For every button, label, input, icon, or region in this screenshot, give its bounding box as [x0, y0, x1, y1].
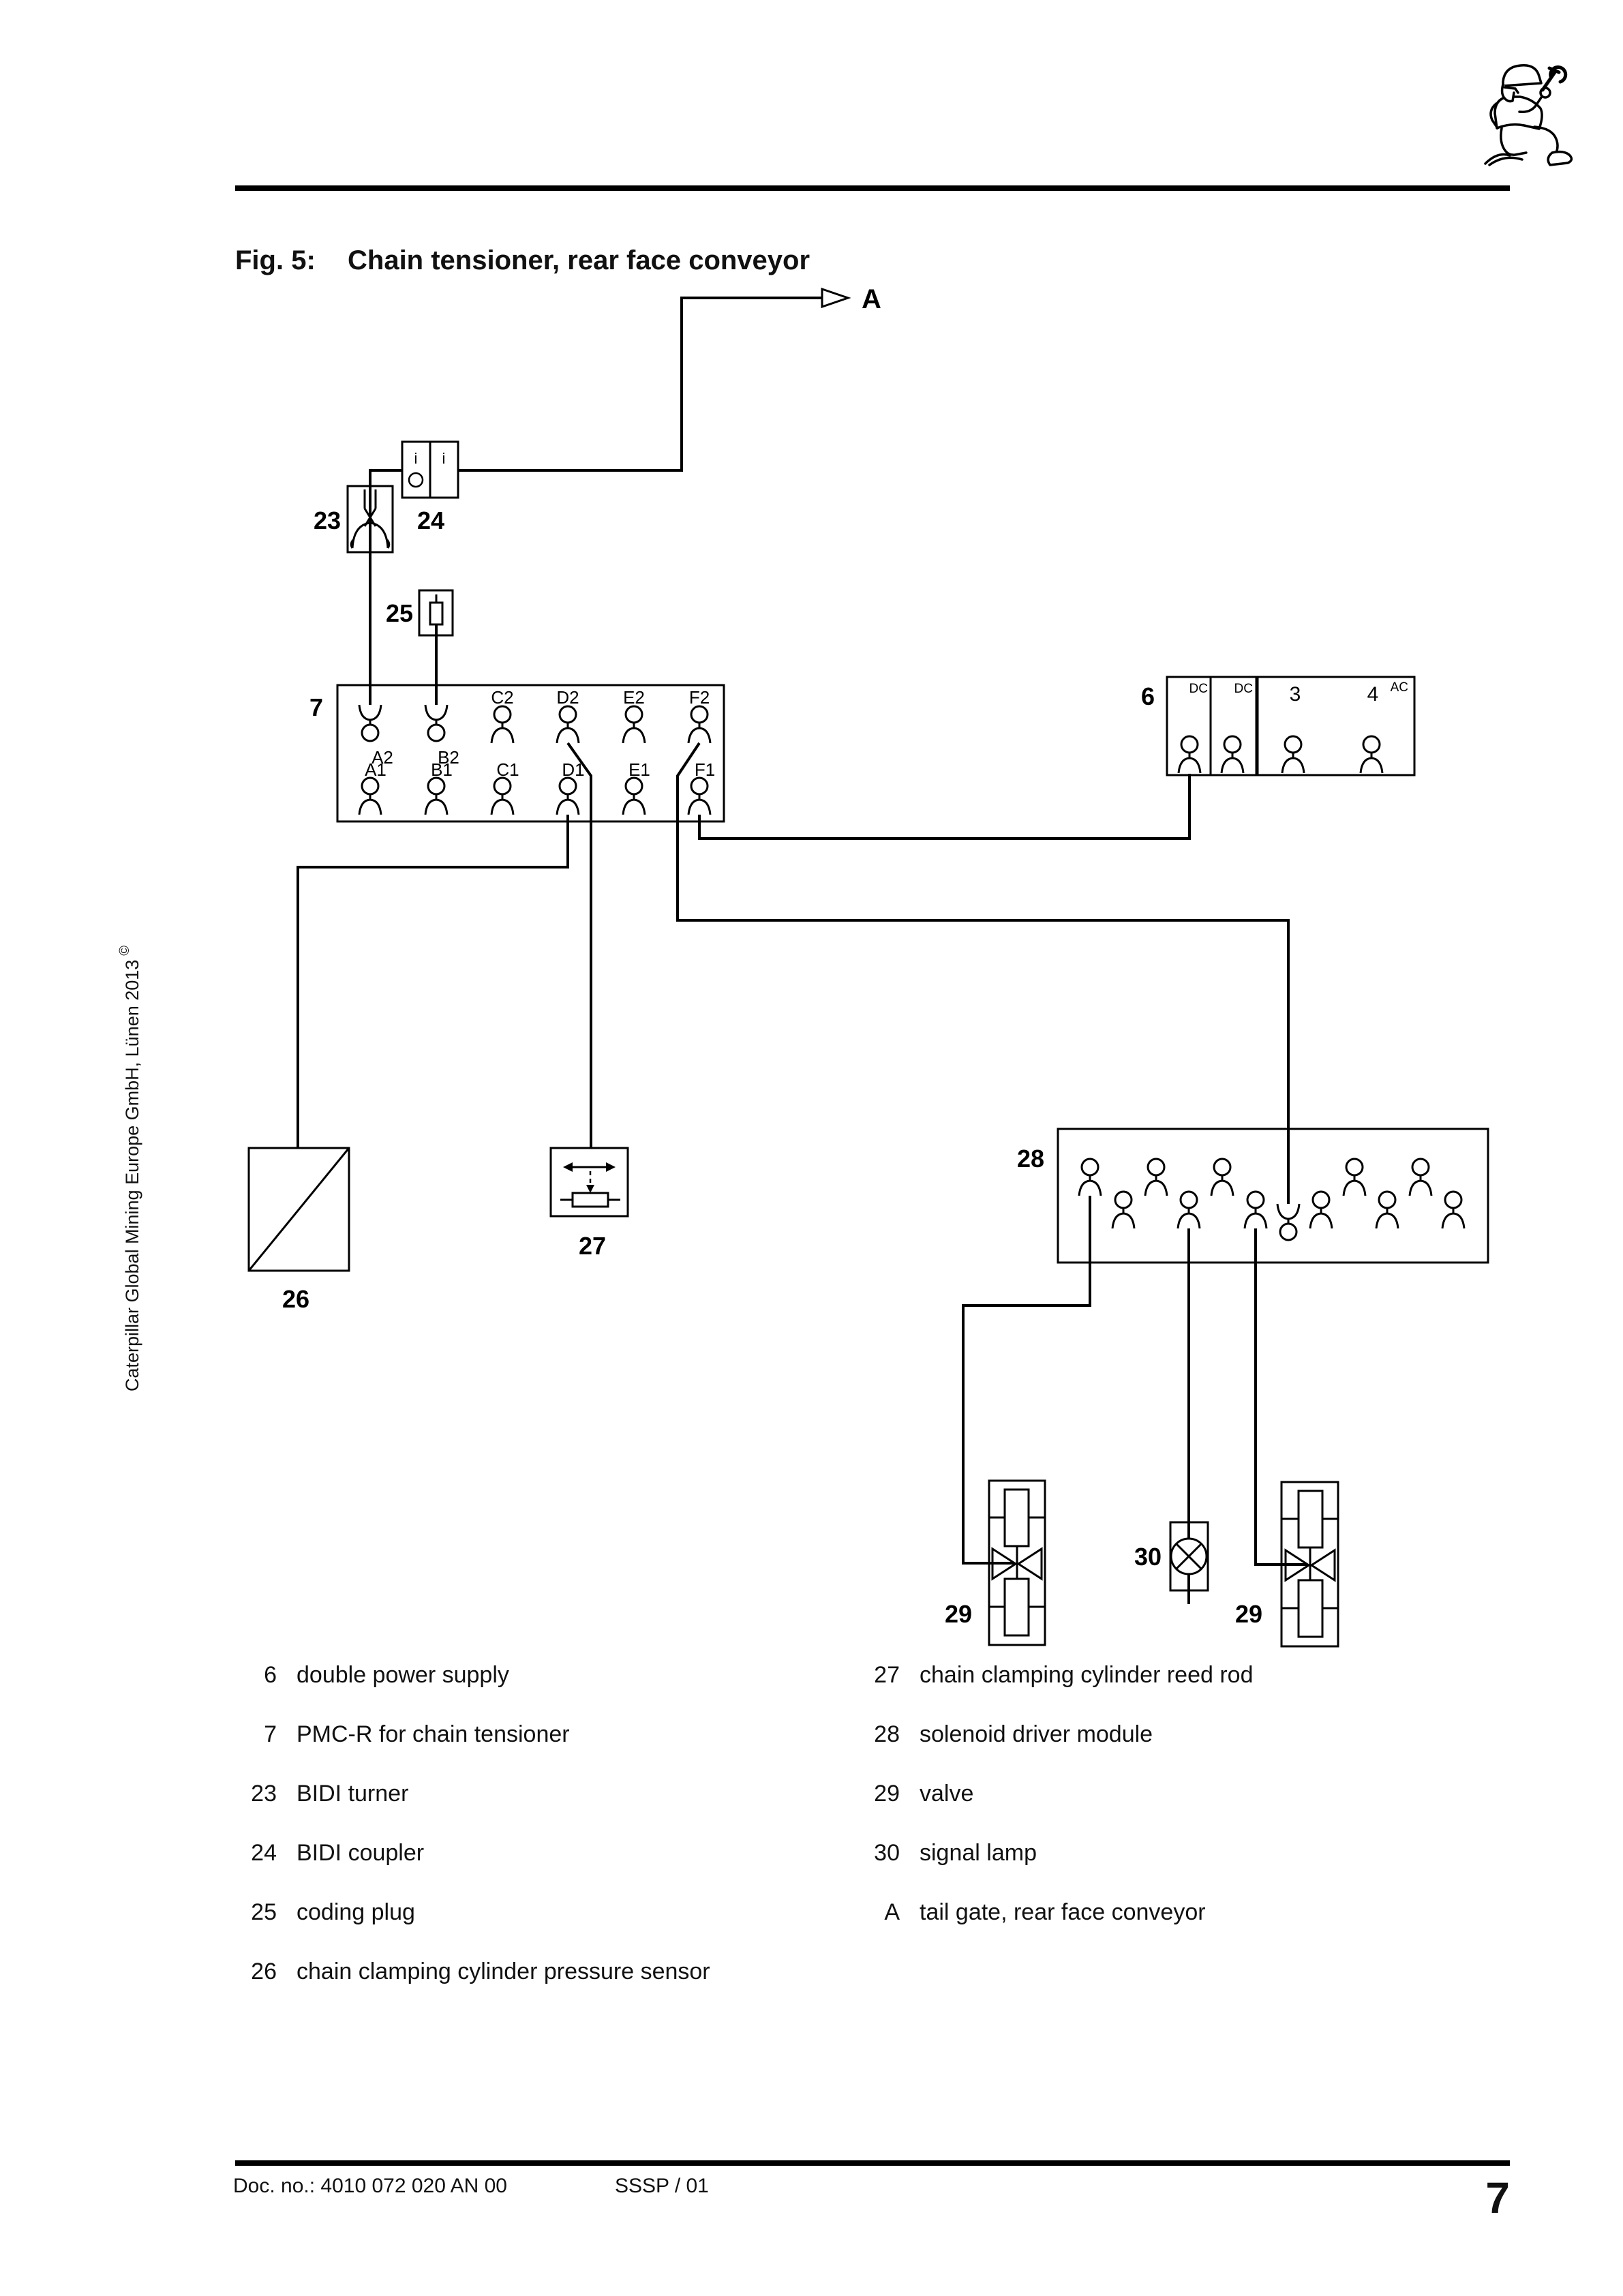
component-bidi-coupler: i i 24: [402, 442, 458, 534]
legend-label: double power supply: [297, 1661, 509, 1721]
connector-plug: [1376, 1192, 1398, 1228]
port-c2: C2: [491, 687, 513, 708]
label-29-left: 29: [945, 1600, 972, 1628]
connector-plug: [623, 778, 645, 815]
port-a1: A1: [365, 759, 386, 780]
legend-label: chain clamping cylinder pressure sensor: [297, 1958, 710, 2017]
label-23: 23: [314, 507, 341, 534]
legend-label: signal lamp: [920, 1839, 1037, 1899]
cell-dc1: DC: [1189, 682, 1208, 696]
legend-label: chain clamping cylinder reed rod: [920, 1661, 1253, 1721]
legend-item: 28solenoid driver module: [855, 1721, 1253, 1780]
component-valve-right: 29: [1235, 1482, 1338, 1646]
connector-socket: [1277, 1204, 1299, 1240]
legend-num: 29: [855, 1780, 900, 1839]
label-30: 30: [1134, 1543, 1162, 1571]
connector-plug: [623, 706, 645, 743]
cell-ac: AC: [1391, 680, 1408, 695]
connector-plug: [1344, 1159, 1365, 1196]
port-e1: E1: [628, 759, 650, 780]
document-page: Fig. 5:Chain tensioner, rear face convey…: [0, 0, 1623, 2296]
connector-plug: [1361, 736, 1382, 773]
connector-socket: [425, 705, 447, 741]
legend-num: A: [855, 1899, 900, 1958]
arrow-left-icon: [563, 1162, 573, 1172]
port-b1: B1: [431, 759, 453, 780]
wire-f2-solenoid-driver: [678, 743, 1288, 1204]
legend-num: 26: [232, 1958, 277, 2017]
arrow-down-icon: [586, 1185, 594, 1193]
connector-plug: [1145, 1159, 1167, 1196]
component-pmcr: 7 A2 B2 C2 D2 E2 F2 A1 B1 C1 D1 E1 F1: [309, 685, 724, 821]
component-coding-plug: 25: [386, 590, 453, 635]
valve-triangle-icon: [1018, 1549, 1042, 1579]
legend-item: 7PMC-R for chain tensioner: [232, 1721, 710, 1780]
legend-item: 30signal lamp: [855, 1839, 1253, 1899]
coupler-port-i-left: i: [414, 450, 418, 467]
legend-label: tail gate, rear face conveyor: [920, 1899, 1206, 1958]
legend-item: 23BIDI turner: [232, 1780, 710, 1839]
label-6: 6: [1141, 682, 1155, 710]
valve-triangle-icon: [1311, 1550, 1335, 1580]
connector-plug: [1245, 1192, 1266, 1228]
label-27: 27: [579, 1232, 606, 1260]
legend-label: coding plug: [297, 1899, 415, 1958]
legend-item: 27chain clamping cylinder reed rod: [855, 1661, 1253, 1721]
legend-num: 24: [232, 1839, 277, 1899]
coupler-port-i-right: i: [442, 450, 446, 467]
legend-label: BIDI turner: [297, 1780, 408, 1839]
legend-label: valve: [920, 1780, 973, 1839]
legend-item: 24BIDI coupler: [232, 1839, 710, 1899]
connector-plug: [557, 706, 579, 743]
connector-plug: [491, 778, 513, 815]
component-power-supply: DC DC 3 4 AC 6: [1141, 677, 1414, 775]
component-pressure-sensor: 26: [249, 1148, 349, 1313]
footer-revision: SSSP / 01: [615, 2175, 709, 2197]
connector-plug: [688, 706, 710, 743]
legend-item: 29valve: [855, 1780, 1253, 1839]
connector-plug: [1178, 1192, 1200, 1228]
port-f1: F1: [695, 759, 715, 780]
wire-valve-left: [963, 1196, 1090, 1563]
connector-socket: [359, 705, 381, 741]
label-7: 7: [309, 693, 323, 721]
page-number: 7: [1374, 2176, 1510, 2220]
connector-plug: [688, 778, 710, 815]
connector-plug: [1442, 1192, 1464, 1228]
footer-doc-number: Doc. no.: 4010 072 020 AN 00: [233, 2175, 507, 2197]
connector-plug: [1410, 1159, 1431, 1196]
legend-num: 30: [855, 1839, 900, 1899]
arrow-right-icon: [606, 1162, 616, 1172]
connector-plug: [359, 778, 381, 815]
label-29-right: 29: [1235, 1600, 1262, 1628]
wire-f1-power-supply: [699, 774, 1189, 839]
channel-4: 4: [1367, 683, 1379, 706]
legend-item: 26chain clamping cylinder pressure senso…: [232, 1958, 710, 2017]
connector-plug: [425, 778, 447, 815]
legend-num: 28: [855, 1721, 900, 1780]
legend-num: 7: [232, 1721, 277, 1780]
connector-plug: [1222, 736, 1243, 773]
legend-right-column: 27chain clamping cylinder reed rod 28sol…: [855, 1661, 1253, 1958]
label-24: 24: [417, 507, 444, 534]
legend-num: 6: [232, 1661, 277, 1721]
wire-to-tailgate: [458, 298, 822, 470]
legend-num: 25: [232, 1899, 277, 1958]
component-bidi-turner: 23: [314, 486, 393, 552]
legend-label: PMC-R for chain tensioner: [297, 1721, 570, 1780]
legend-num: 23: [232, 1780, 277, 1839]
label-28: 28: [1017, 1145, 1044, 1173]
kneeling-worker-icon: [1485, 65, 1571, 165]
connector-plug: [1211, 1159, 1233, 1196]
port-e2: E2: [623, 687, 645, 708]
cell-dc2: DC: [1234, 682, 1253, 696]
legend-label: BIDI coupler: [297, 1839, 424, 1899]
arrowhead-icon: [822, 289, 848, 307]
connector-plug: [1079, 1159, 1101, 1196]
port-d2: D2: [556, 687, 579, 708]
connector-plug: [491, 706, 513, 743]
connector-plug: [557, 778, 579, 815]
connector-plug: [1112, 1192, 1134, 1228]
port-f2: F2: [689, 687, 710, 708]
legend-item: 25coding plug: [232, 1899, 710, 1958]
label-26: 26: [282, 1285, 309, 1313]
legend-num: 27: [855, 1661, 900, 1721]
wire-d2-reedrod: [568, 743, 591, 1148]
legend-item: 6double power supply: [232, 1661, 710, 1721]
port-c1: C1: [496, 759, 519, 780]
channel-3: 3: [1290, 683, 1301, 706]
connector-plug: [1179, 736, 1200, 773]
connector-plug: [1282, 736, 1304, 773]
component-solenoid-driver: 28: [1017, 1129, 1488, 1263]
legend-left-column: 6double power supply 7PMC-R for chain te…: [232, 1661, 710, 2017]
legend-label: solenoid driver module: [920, 1721, 1153, 1780]
ref-label-A: A: [862, 284, 881, 314]
connector-plug: [1310, 1192, 1332, 1228]
label-25: 25: [386, 599, 413, 627]
legend-item: Atail gate, rear face conveyor: [855, 1899, 1253, 1958]
component-reed-rod: 27: [551, 1148, 628, 1260]
wire-d1-pressure-sensor: [298, 815, 568, 1148]
component-signal-lamp: 30: [1134, 1522, 1208, 1590]
